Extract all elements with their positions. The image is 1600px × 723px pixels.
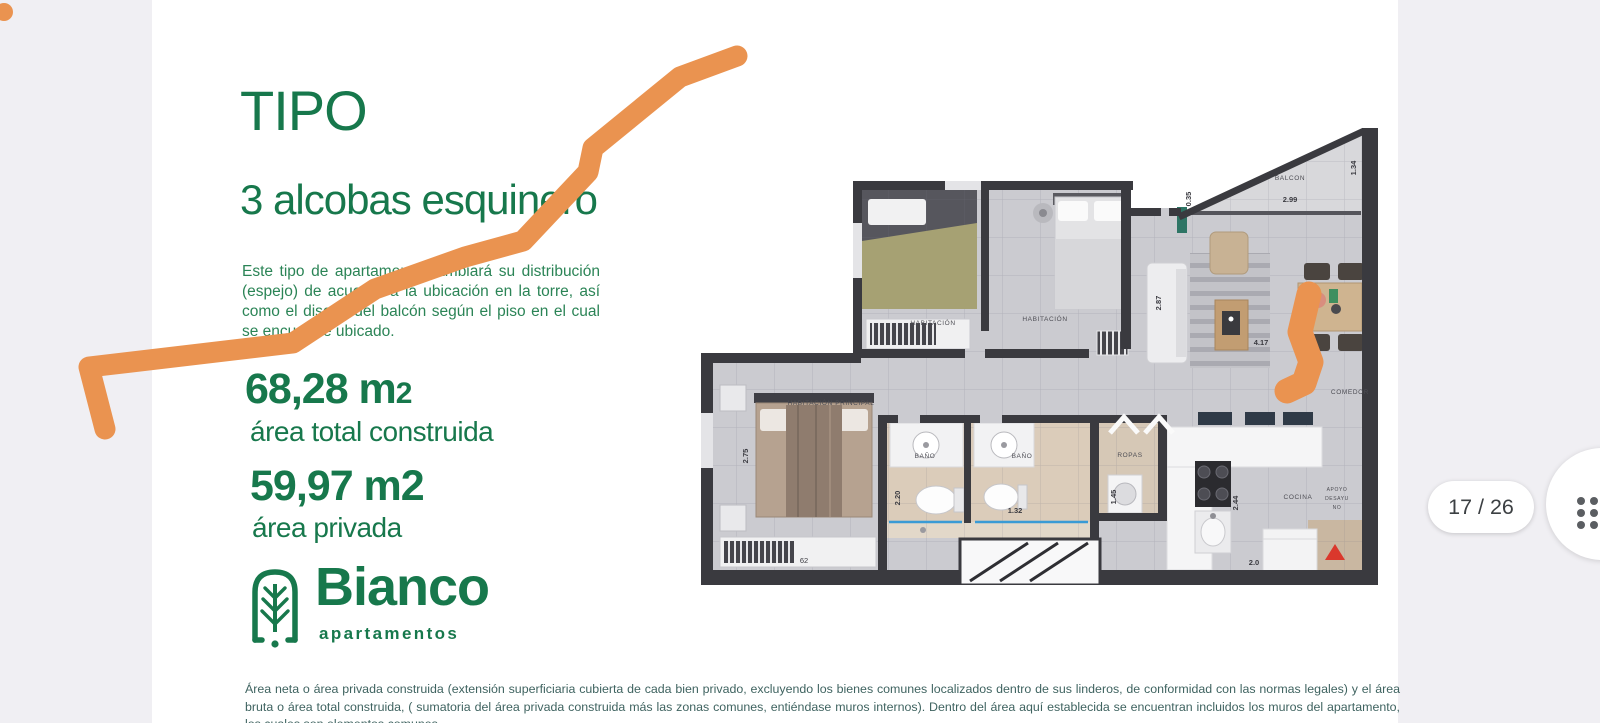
tree-arch-icon (246, 564, 304, 654)
document-viewer: TIPO 3 alcobas esquinero Este tipo de ap… (0, 0, 1600, 723)
area-total-sup: 2 (396, 377, 412, 410)
page-title: TIPO (240, 78, 367, 143)
dim-closet: 62 (800, 556, 808, 565)
page-indicator: 17 / 26 (1428, 481, 1534, 533)
marker-dot-corner (0, 3, 13, 21)
room-label-master: HABITACIÓN PRINCIPAL (788, 398, 875, 407)
dim-living-height: 2.87 (1154, 296, 1163, 311)
dim-kitchen-width: 2.0 (1249, 558, 1259, 567)
room-label-bedroom2: HABITACIÓN (1022, 314, 1067, 323)
floor-plan: BALCON HABITACIÓN HABITACIÓN HABITACIÓN … (698, 123, 1398, 585)
dim-balcony-left: 0.35 (1184, 192, 1193, 207)
area-private-label: área privada (252, 512, 402, 544)
dim-master-height: 2.75 (741, 449, 750, 464)
room-label-laundry: ROPAS (1117, 452, 1142, 459)
dim-kitchen-height: 2.44 (1231, 495, 1240, 510)
dim-living-width: 4.17 (1254, 338, 1269, 347)
page-subtitle: 3 alcobas esquinero (240, 176, 597, 224)
page-indicator-text: 17 / 26 (1448, 495, 1514, 520)
brand-tagline: apartamentos (319, 624, 459, 644)
dim-balcony-width: 2.99 (1283, 195, 1298, 204)
brand-logo: Bianco apartamentos (243, 560, 523, 655)
dim-bath-height: 2.20 (893, 491, 902, 506)
entry-note-line3: NO (1333, 505, 1342, 511)
area-total-label: área total construida (250, 416, 493, 448)
area-private-value: 59,97 m2 (250, 462, 424, 511)
area-total-number: 68,28 m (245, 365, 396, 413)
dim-balcony-right: 1.34 (1349, 160, 1358, 175)
apps-grid-button[interactable] (1546, 448, 1600, 560)
entry-note-line2: DESAYU (1325, 496, 1349, 502)
room-label-dining: COMEDOR (1331, 389, 1369, 396)
entry-note-line1: APOYO (1327, 487, 1348, 493)
dim-bath-width: 1.32 (1008, 506, 1023, 515)
room-label-balcony: BALCON (1275, 175, 1305, 182)
dim-laundry-height: 1.45 (1109, 490, 1118, 505)
room-label-bath2: BAÑO (1012, 451, 1033, 460)
room-label-bedroom1: HABITACIÓN (910, 318, 955, 327)
description-paragraph: Este tipo de apartamento cambiará su dis… (242, 262, 600, 343)
room-label-bath1: BAÑO (915, 451, 936, 460)
room-label-kitchen: COCINA (1284, 494, 1313, 501)
dim-laundry-width: 1.40 (1125, 512, 1140, 521)
legal-disclaimer: Área neta o área privada construida (ext… (245, 681, 1400, 723)
area-total-value: 68,28 m2 (245, 365, 411, 414)
brand-name: Bianco (315, 556, 489, 618)
stairwell (960, 539, 1100, 585)
